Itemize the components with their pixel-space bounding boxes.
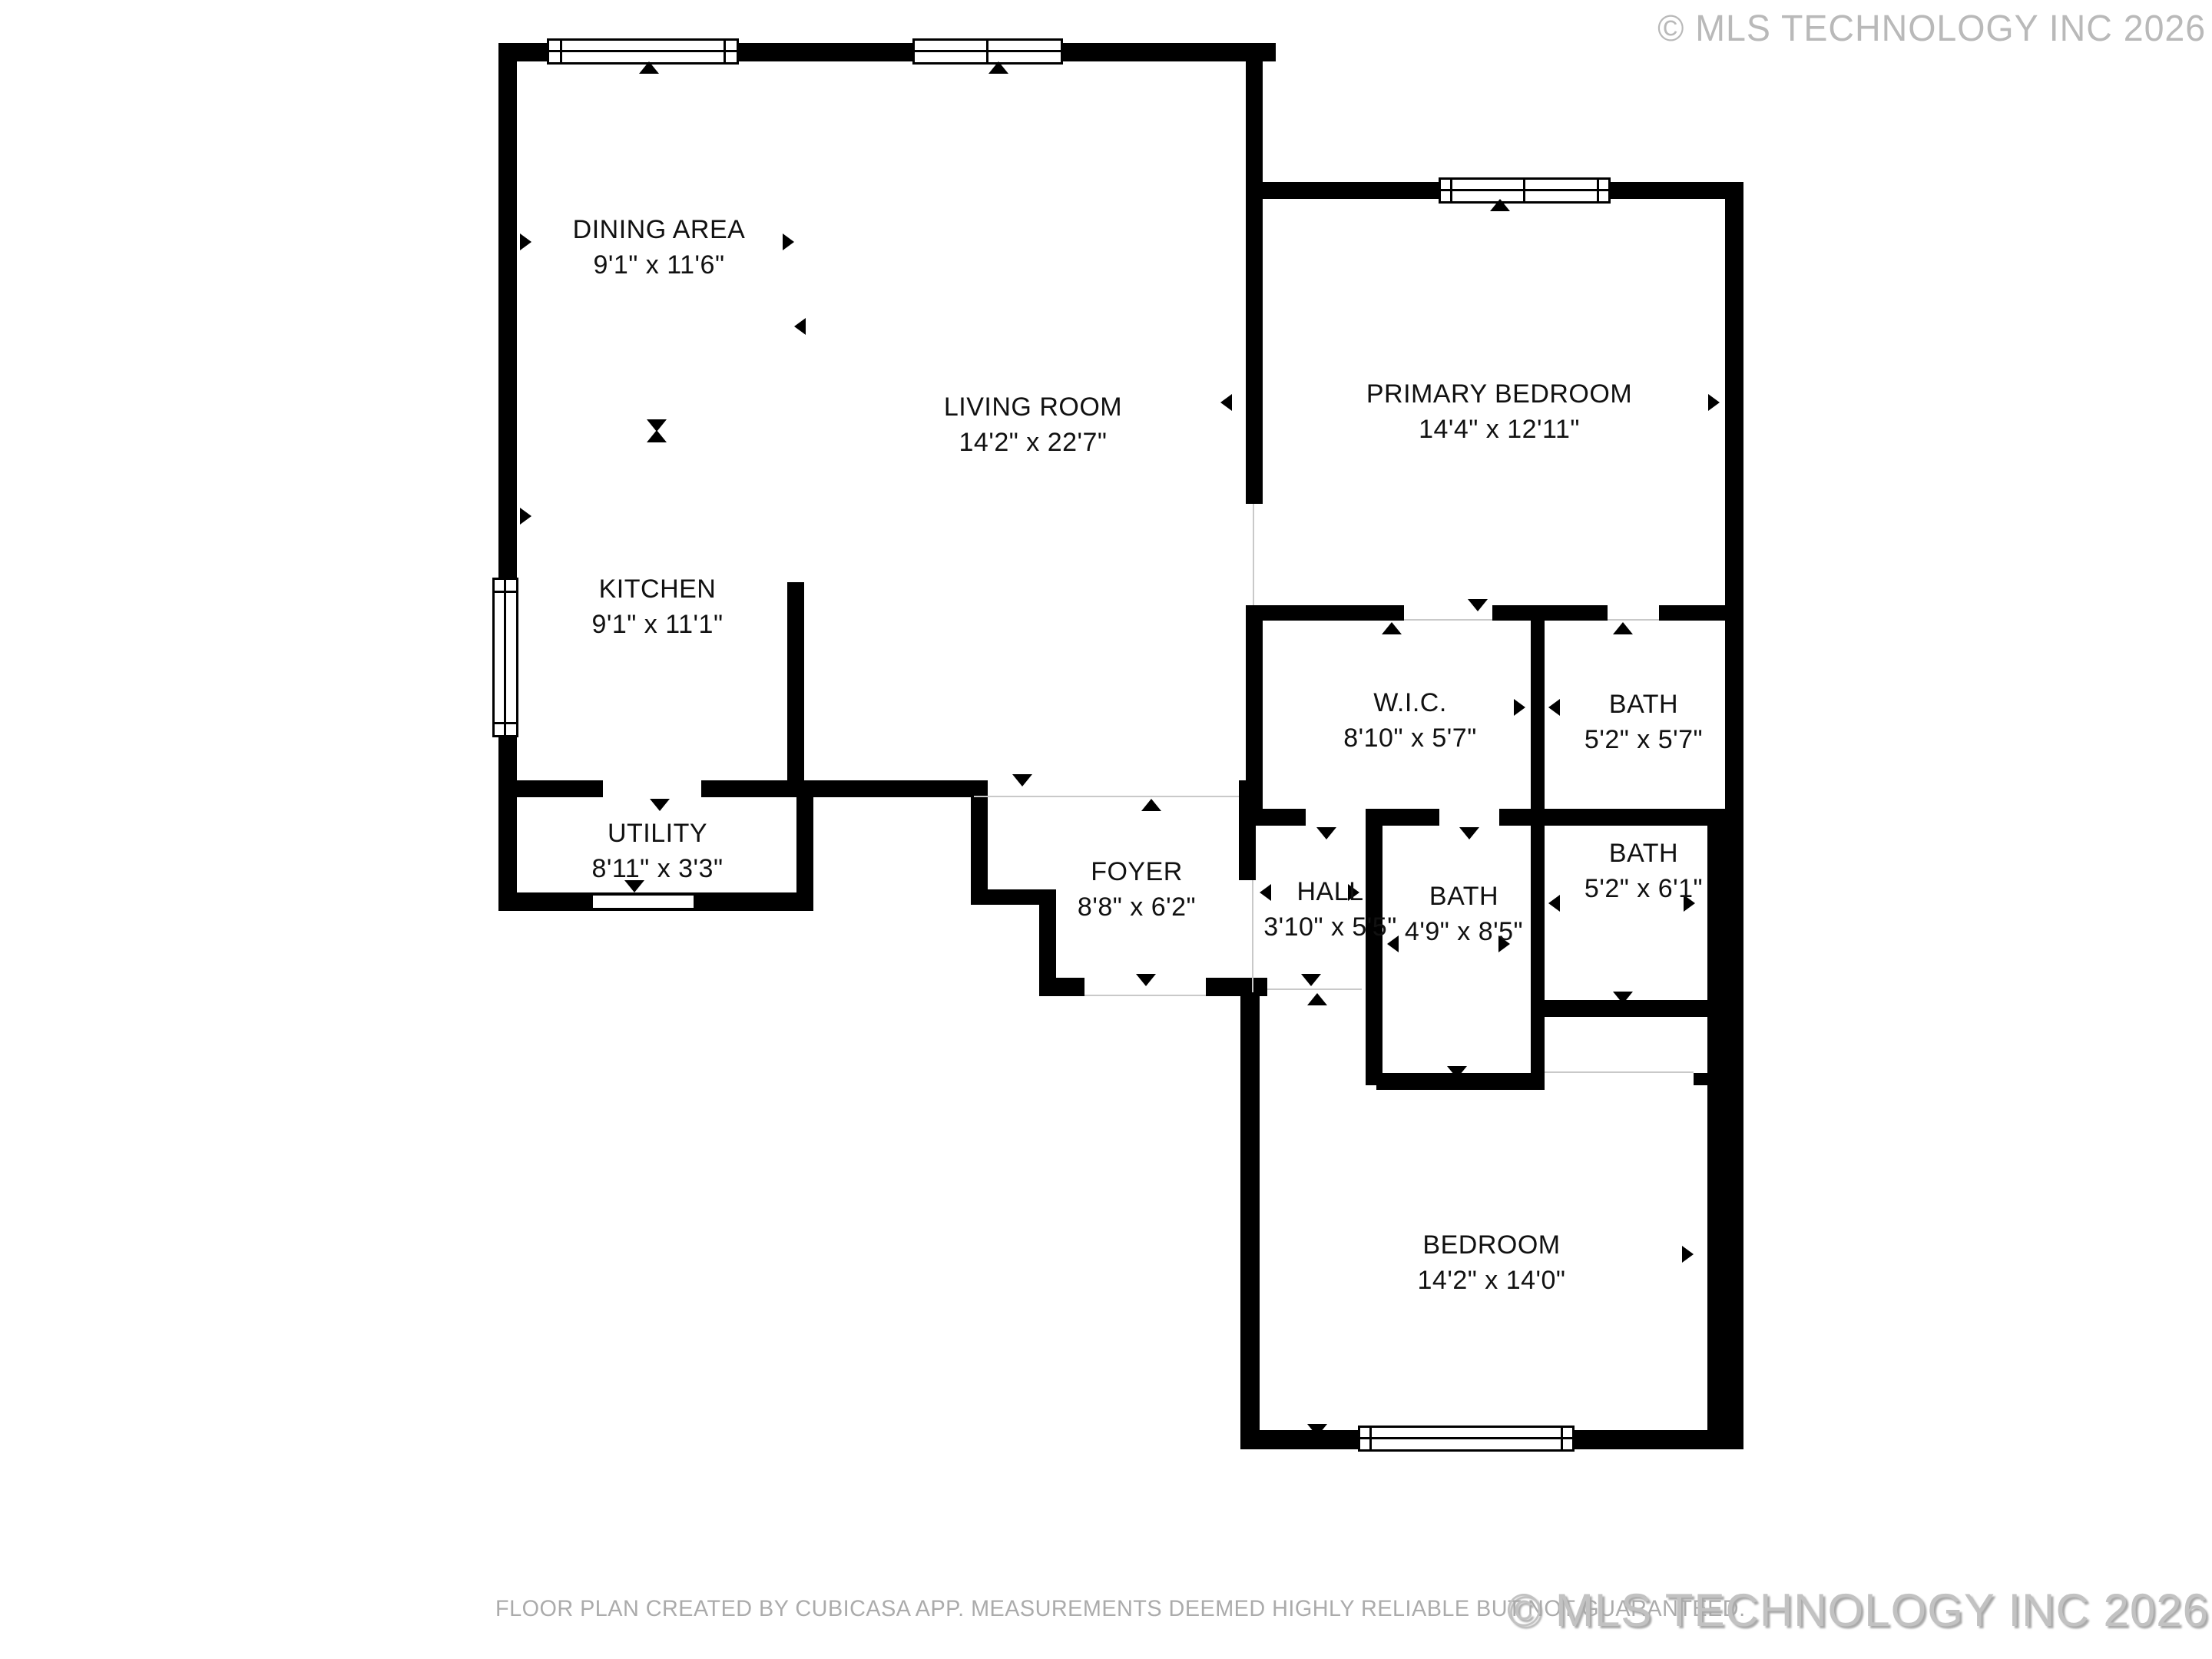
room-name: BATH [1584, 687, 1703, 722]
mls-watermark-top: © MLS TECHNOLOGY INC 2026 [1657, 8, 2206, 50]
room-dimensions: 14'2" x 14'0" [1418, 1263, 1566, 1298]
door-swing-icon [1613, 992, 1633, 1004]
line-wic-door-opening [1404, 619, 1492, 621]
room-label-wic: W.I.C.8'10" x 5'7" [1343, 685, 1477, 756]
door-swing-icon [1548, 699, 1560, 716]
room-dimensions: 5'2" x 6'1" [1584, 871, 1703, 906]
wall-right-exterior-lower [1707, 816, 1743, 1449]
window-kitchen-left [492, 578, 518, 737]
room-dimensions: 9'1" x 11'1" [591, 607, 723, 642]
wall-utility-top-left [498, 780, 603, 797]
wall-primary-bottom-b [1492, 605, 1608, 621]
room-dimensions: 9'1" x 11'6" [573, 247, 746, 283]
door-swing-icon [1012, 774, 1032, 786]
wall-wic-bottom-b [1366, 809, 1439, 826]
window-primary-top [1439, 177, 1611, 204]
wall-living-wic-lower [1246, 605, 1263, 783]
room-name: LIVING ROOM [944, 389, 1122, 425]
room-label-utility: UTILITY8'11" x 3'3" [591, 816, 723, 886]
door-swing-icon [1613, 622, 1633, 634]
room-dimensions: 4'9" x 8'5" [1405, 914, 1523, 949]
door-swing-icon [1490, 199, 1510, 211]
door-swing-icon [1468, 599, 1488, 611]
door-swing-icon [650, 799, 670, 811]
room-dimensions: 8'8" x 6'2" [1078, 889, 1196, 925]
window-dining-top [547, 38, 739, 65]
mls-watermark-bottom: © MLS TECHNOLOGY INC 2026 [1507, 1584, 2209, 1637]
line-foyer-hall-opening [1252, 880, 1253, 992]
wall-foyer-step-vertical [1039, 905, 1056, 996]
room-name: BATH [1584, 836, 1703, 871]
line-primary-door-opening [1253, 504, 1254, 605]
door-swing-icon [1316, 827, 1336, 839]
room-label-primary: PRIMARY BEDROOM14'4" x 12'11" [1366, 376, 1632, 447]
wall-bedroom-top-stub [1694, 1073, 1707, 1085]
wall-foyer-corner-stub [1056, 978, 1084, 996]
door-swing-icon [1307, 993, 1327, 1005]
door-swing-icon [1307, 1424, 1327, 1436]
room-label-bedroom: BEDROOM14'2" x 14'0" [1418, 1227, 1566, 1298]
wall-bedroom-left [1240, 996, 1260, 1449]
wall-living-primary-upper [1246, 43, 1263, 504]
door-swing-icon [639, 61, 659, 74]
room-dimensions: 14'2" x 22'7" [944, 425, 1122, 460]
wall-wic-bottom-c [1499, 809, 1743, 826]
room-label-bath1: BATH4'9" x 8'5" [1405, 879, 1523, 949]
door-swing-icon [647, 430, 667, 442]
wall-wic-bath-divider [1531, 621, 1545, 1073]
room-name: KITCHEN [591, 571, 723, 607]
line-bedroom-top-right [1545, 1071, 1694, 1073]
wall-primary-bottom-a [1246, 605, 1404, 621]
room-dimensions: 8'10" x 5'7" [1343, 720, 1477, 756]
wall-foyer-left [971, 780, 988, 905]
door-swing-icon [520, 233, 531, 250]
door-swing-icon [1301, 974, 1321, 986]
door-swing-icon [1220, 394, 1232, 411]
room-dimensions: 3'10" x 5'5" [1263, 909, 1397, 945]
door-swing-icon [1141, 799, 1161, 811]
wall-foyer-bottom-right-stub [1206, 978, 1267, 996]
door-swing-icon [1548, 895, 1560, 912]
line-entry-opening [1084, 995, 1206, 996]
door-utility-exterior [591, 894, 695, 909]
door-swing-icon [1447, 1066, 1467, 1078]
room-label-bath2: BATH5'2" x 5'7" [1584, 687, 1703, 757]
window-bedroom-bottom [1358, 1426, 1575, 1452]
wall-utility-right [796, 780, 813, 911]
room-name: W.I.C. [1343, 685, 1477, 720]
room-label-foyer: FOYER8'8" x 6'2" [1078, 854, 1196, 925]
wall-primary-bottom-c [1659, 605, 1743, 621]
room-label-living: LIVING ROOM14'2" x 22'7" [944, 389, 1122, 460]
floor-plan: DINING AREA9'1" x 11'6"LIVING ROOM14'2" … [0, 0, 2212, 1659]
door-swing-icon [783, 233, 794, 250]
room-dimensions: 8'11" x 3'3" [591, 851, 723, 886]
door-swing-icon [1382, 622, 1402, 634]
room-label-hall: HALL3'10" x 5'5" [1263, 874, 1397, 945]
window-living-top [912, 38, 1063, 65]
wall-kitchen-partition [787, 582, 804, 783]
room-dimensions: 14'4" x 12'11" [1366, 412, 1632, 447]
door-swing-icon [1459, 827, 1479, 839]
room-name: BEDROOM [1418, 1227, 1566, 1263]
wall-living-bottom [804, 780, 974, 797]
room-name: HALL [1263, 874, 1397, 909]
door-swing-icon [1708, 394, 1720, 411]
wall-right-exterior-upper [1725, 182, 1743, 816]
room-name: PRIMARY BEDROOM [1366, 376, 1632, 412]
room-name: BATH [1405, 879, 1523, 914]
door-swing-icon [794, 318, 806, 335]
door-swing-icon [1682, 1246, 1694, 1263]
room-name: DINING AREA [573, 212, 746, 247]
room-label-bath3: BATH5'2" x 6'1" [1584, 836, 1703, 906]
line-hall-bedroom-opening [1267, 988, 1362, 990]
room-name: UTILITY [591, 816, 723, 851]
door-swing-icon [988, 61, 1008, 74]
door-swing-icon [520, 508, 531, 525]
room-label-kitchen: KITCHEN9'1" x 11'1" [591, 571, 723, 642]
room-label-dining: DINING AREA9'1" x 11'6" [573, 212, 746, 283]
room-dimensions: 5'2" x 5'7" [1584, 722, 1703, 757]
line-bath-door-opening [1608, 619, 1659, 621]
door-swing-icon [1136, 974, 1156, 986]
room-name: FOYER [1078, 854, 1196, 889]
wall-hall-bath-divider [1366, 826, 1382, 1085]
door-swing-icon [1514, 699, 1525, 716]
wall-foyer-step-bottom [971, 889, 1056, 905]
line-foyer-top-opening [974, 796, 1239, 797]
wall-wic-bottom-a [1246, 809, 1306, 826]
